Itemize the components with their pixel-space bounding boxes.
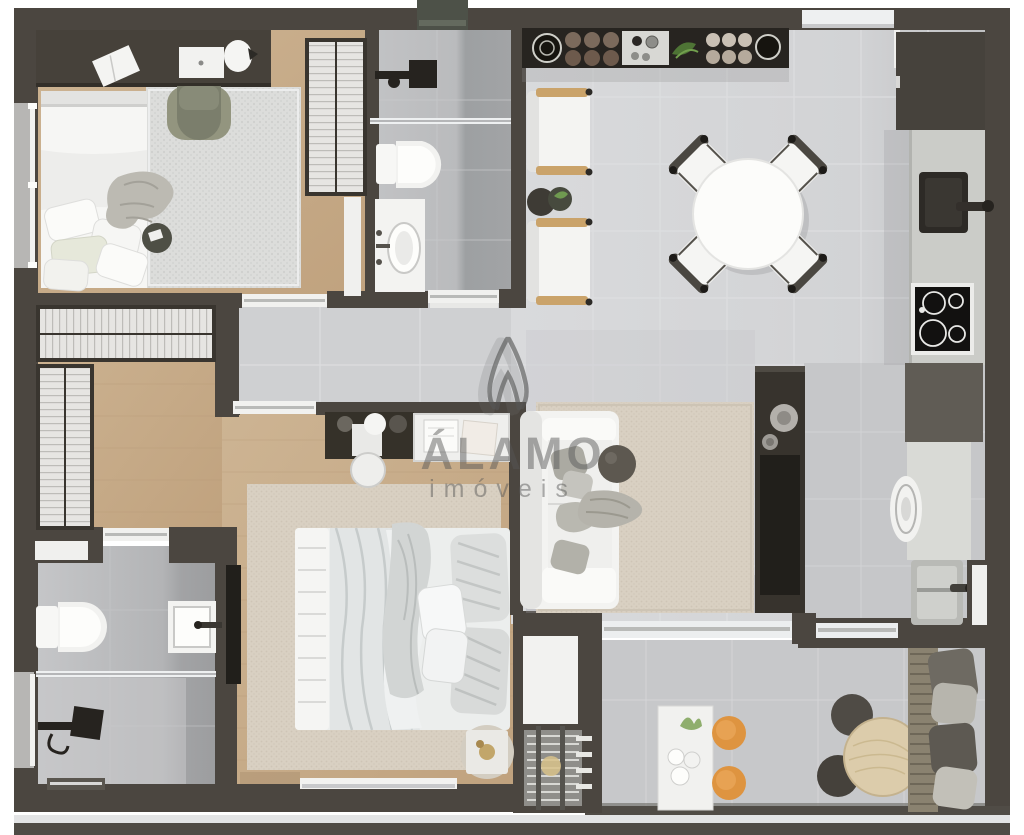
svg-text:ÁLAMO: ÁLAMO	[421, 428, 606, 479]
svg-text:imóveis: imóveis	[429, 475, 577, 503]
